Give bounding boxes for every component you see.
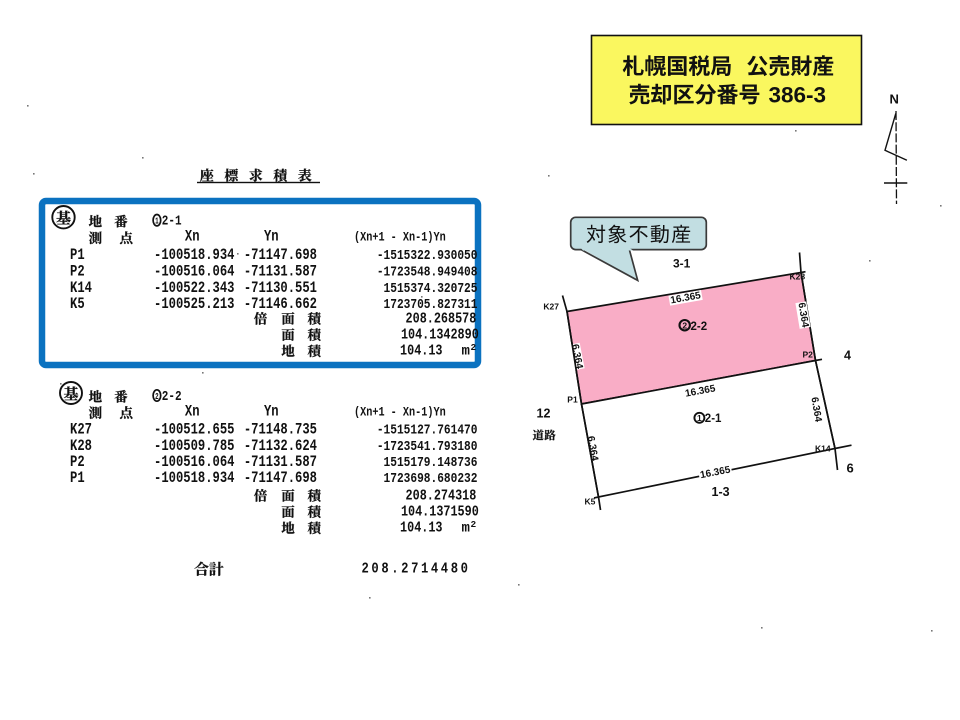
svg-text:m: m bbox=[462, 521, 470, 537]
svg-text:104.13: 104.13 bbox=[400, 344, 442, 361]
svg-text:K14: K14 bbox=[815, 444, 831, 454]
svg-text:Yn: Yn bbox=[264, 404, 279, 421]
svg-text:104.13: 104.13 bbox=[400, 521, 442, 538]
svg-text:-71148.735: -71148.735 bbox=[244, 422, 317, 439]
svg-text:2: 2 bbox=[471, 519, 477, 530]
svg-text:208.274318: 208.274318 bbox=[406, 488, 477, 505]
svg-text:2: 2 bbox=[155, 392, 159, 403]
svg-text:-100516.064: -100516.064 bbox=[154, 265, 234, 282]
svg-text:-71132.624: -71132.624 bbox=[244, 439, 317, 456]
svg-text:-100518.934: -100518.934 bbox=[154, 471, 234, 488]
svg-text:2-1: 2-1 bbox=[162, 214, 182, 229]
svg-text:-71131.587: -71131.587 bbox=[244, 265, 317, 282]
svg-text:1515179.148736: 1515179.148736 bbox=[384, 454, 478, 471]
svg-text:4: 4 bbox=[844, 349, 851, 363]
svg-text:-1515127.761470: -1515127.761470 bbox=[377, 421, 478, 438]
svg-text:K27: K27 bbox=[543, 302, 559, 312]
svg-text:3-1: 3-1 bbox=[673, 256, 691, 270]
svg-text:K14: K14 bbox=[70, 281, 92, 298]
svg-text:(Xn+1 - Xn-1)Yn: (Xn+1 - Xn-1)Yn bbox=[354, 405, 446, 419]
svg-text:-100516.064: -100516.064 bbox=[154, 455, 234, 472]
svg-text:1: 1 bbox=[697, 413, 702, 423]
svg-text:12: 12 bbox=[537, 407, 551, 421]
svg-text:P2: P2 bbox=[70, 455, 85, 472]
svg-text:-71131.587: -71131.587 bbox=[244, 455, 317, 472]
svg-text:(Xn+1 - Xn-1)Yn: (Xn+1 - Xn-1)Yn bbox=[354, 231, 446, 245]
svg-text:-1515322.930050: -1515322.930050 bbox=[377, 247, 478, 264]
svg-text:2-2: 2-2 bbox=[691, 321, 708, 333]
svg-text:2-2: 2-2 bbox=[162, 389, 182, 404]
svg-text:Yn: Yn bbox=[264, 230, 279, 247]
svg-text:208.2714480: 208.2714480 bbox=[362, 562, 471, 578]
svg-text:-71147.698: -71147.698 bbox=[244, 471, 317, 488]
svg-text:2-1: 2-1 bbox=[705, 413, 722, 425]
svg-text:K28: K28 bbox=[70, 439, 92, 456]
svg-text:K5: K5 bbox=[585, 497, 596, 507]
svg-text:104.1342890: 104.1342890 bbox=[401, 327, 479, 344]
svg-text:P1: P1 bbox=[567, 395, 578, 405]
svg-text:1723698.680232: 1723698.680232 bbox=[384, 470, 478, 487]
svg-text:K28: K28 bbox=[790, 272, 806, 282]
svg-text:-100522.343: -100522.343 bbox=[154, 281, 234, 298]
svg-text:104.1371590: 104.1371590 bbox=[401, 504, 479, 521]
svg-text:-1723548.949408: -1723548.949408 bbox=[377, 263, 478, 280]
svg-text:-100509.785: -100509.785 bbox=[154, 439, 234, 456]
svg-text:208.268578: 208.268578 bbox=[406, 311, 477, 328]
svg-text:1515374.320725: 1515374.320725 bbox=[384, 280, 478, 297]
svg-text:Xn: Xn bbox=[185, 404, 200, 421]
svg-text:6: 6 bbox=[847, 461, 854, 476]
svg-text:Xn: Xn bbox=[185, 230, 200, 247]
svg-text:K5: K5 bbox=[70, 297, 85, 314]
svg-text:P2: P2 bbox=[70, 265, 85, 282]
svg-text:P1: P1 bbox=[70, 471, 85, 488]
svg-text:K27: K27 bbox=[70, 422, 92, 439]
svg-text:-71130.551: -71130.551 bbox=[244, 281, 317, 298]
svg-text:2: 2 bbox=[471, 342, 477, 353]
svg-text:P2: P2 bbox=[803, 350, 814, 360]
svg-text:-100512.655: -100512.655 bbox=[154, 422, 234, 439]
svg-text:-100525.213: -100525.213 bbox=[154, 297, 234, 314]
svg-text:N: N bbox=[890, 92, 899, 107]
svg-text:-1723541.793180: -1723541.793180 bbox=[377, 438, 478, 455]
svg-text:P1: P1 bbox=[70, 248, 85, 265]
svg-text:-100518.934: -100518.934 bbox=[154, 248, 234, 265]
svg-text:1: 1 bbox=[155, 216, 159, 227]
svg-text:1-3: 1-3 bbox=[712, 485, 730, 499]
svg-text:2: 2 bbox=[682, 320, 687, 330]
svg-text:1723705.827311: 1723705.827311 bbox=[384, 296, 478, 313]
svg-text:-71147.698: -71147.698 bbox=[244, 248, 317, 265]
svg-text:m: m bbox=[462, 344, 470, 360]
svg-text:386-3: 386-3 bbox=[769, 82, 827, 107]
svg-text:-71146.662: -71146.662 bbox=[244, 297, 317, 314]
